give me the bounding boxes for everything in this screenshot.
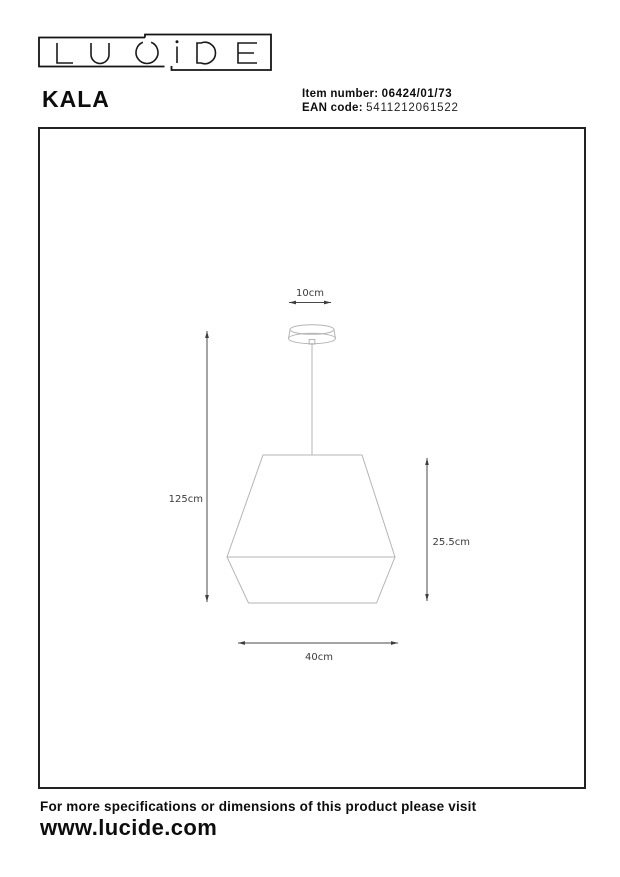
page-title: KALA (42, 86, 110, 113)
logo-frame-left-piece (39, 38, 165, 67)
logo-letters (57, 42, 257, 63)
arrow-right-icon (324, 301, 331, 305)
item-number-row: Item number: 06424/01/73 (302, 87, 459, 101)
shade-diameter-label: 40cm (305, 652, 333, 663)
ean-code-value: 5411212061522 (366, 102, 459, 114)
logo-letter-l (57, 43, 73, 63)
arrow-left-icon (238, 641, 245, 645)
arrow-up-icon (425, 458, 429, 465)
logo-letter-c (136, 42, 158, 63)
overall-height-label: 125cm (169, 494, 203, 505)
dimension-arrowheads (205, 301, 429, 645)
dimension-lines (207, 303, 427, 644)
arrow-left-icon (289, 301, 296, 305)
lamp-shade (227, 455, 395, 603)
ean-code-label: EAN code: (302, 102, 363, 114)
logo-letter-d (197, 42, 216, 63)
logo-letter-u (91, 43, 109, 64)
website-link[interactable]: www.lucide.com (40, 815, 217, 841)
arrow-down-icon (425, 594, 429, 601)
footer-note: For more specifications or dimensions of… (40, 799, 476, 814)
pendant-lamp-diagram: 10cm 125cm 25.5cm 40cm (40, 129, 584, 787)
logo-letter-i-dot (176, 40, 179, 43)
lamp-outline (227, 325, 395, 603)
drawing-frame: 10cm 125cm 25.5cm 40cm (38, 127, 586, 789)
ean-code-row: EAN code: 5411212061522 (302, 101, 459, 115)
brand-name-text: LUCIDE (0, 0, 1, 1)
arrow-down-icon (205, 595, 209, 602)
canopy-bottom-ellipse (289, 333, 336, 343)
canopy-width-label: 10cm (296, 288, 324, 299)
product-codes: Item number: 06424/01/73 EAN code: 54112… (302, 87, 459, 115)
item-number-value: 06424/01/73 (382, 88, 453, 100)
lucide-logo-icon (37, 30, 273, 78)
arrow-right-icon (391, 641, 398, 645)
item-number-label: Item number: (302, 88, 378, 100)
spec-sheet-page: LUCIDE KALA Item number: 06424/01/73 EAN… (0, 0, 620, 877)
shade-height-label: 25.5cm (433, 537, 471, 548)
arrow-up-icon (205, 331, 209, 338)
logo-letter-e (238, 43, 257, 63)
